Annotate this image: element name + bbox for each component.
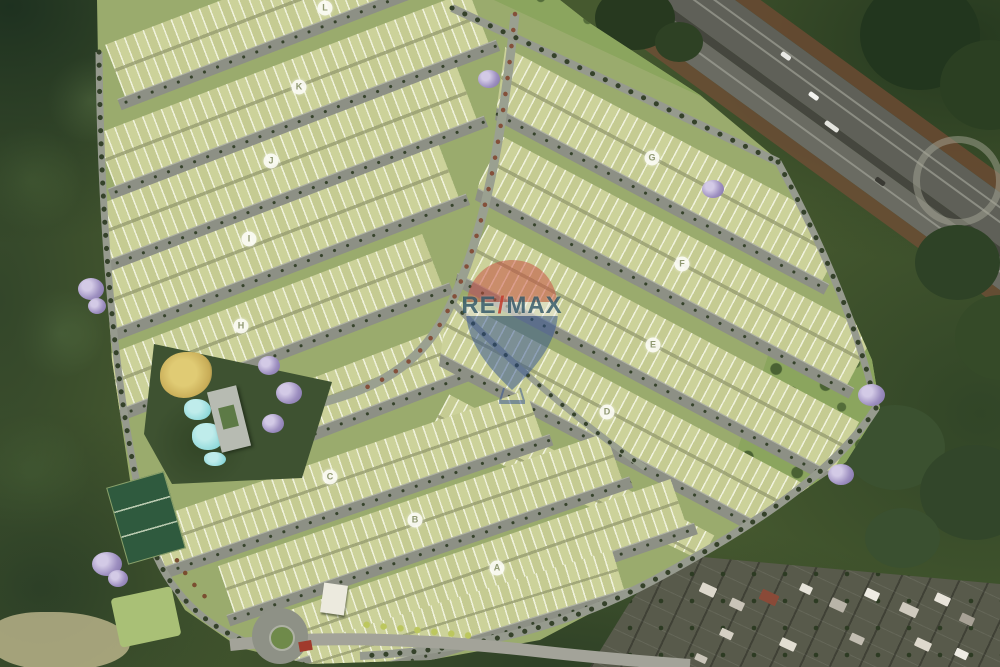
block-marker-A: A xyxy=(490,561,505,576)
watermark-max: MAX xyxy=(506,292,562,319)
block-marker-J: J xyxy=(264,154,279,169)
block-marker-D: D xyxy=(600,405,615,420)
remax-balloon-icon xyxy=(452,256,572,406)
block-marker-E: E xyxy=(646,338,661,353)
watermark-re: RE xyxy=(461,292,496,319)
block-marker-H: H xyxy=(234,319,249,334)
block-marker-C: C xyxy=(323,470,338,485)
block-marker-I: I xyxy=(242,232,257,247)
remax-watermark-text: RE/MAX xyxy=(432,292,592,320)
watermark-slash: / xyxy=(497,292,507,319)
aerial-site-plan-photo: LKJIHGFEDCBA RE/MAX xyxy=(0,0,1000,667)
block-marker-G: G xyxy=(645,151,660,166)
block-marker-F: F xyxy=(675,257,690,272)
block-marker-B: B xyxy=(408,513,423,528)
block-marker-K: K xyxy=(292,80,307,95)
block-marker-L: L xyxy=(318,1,333,16)
